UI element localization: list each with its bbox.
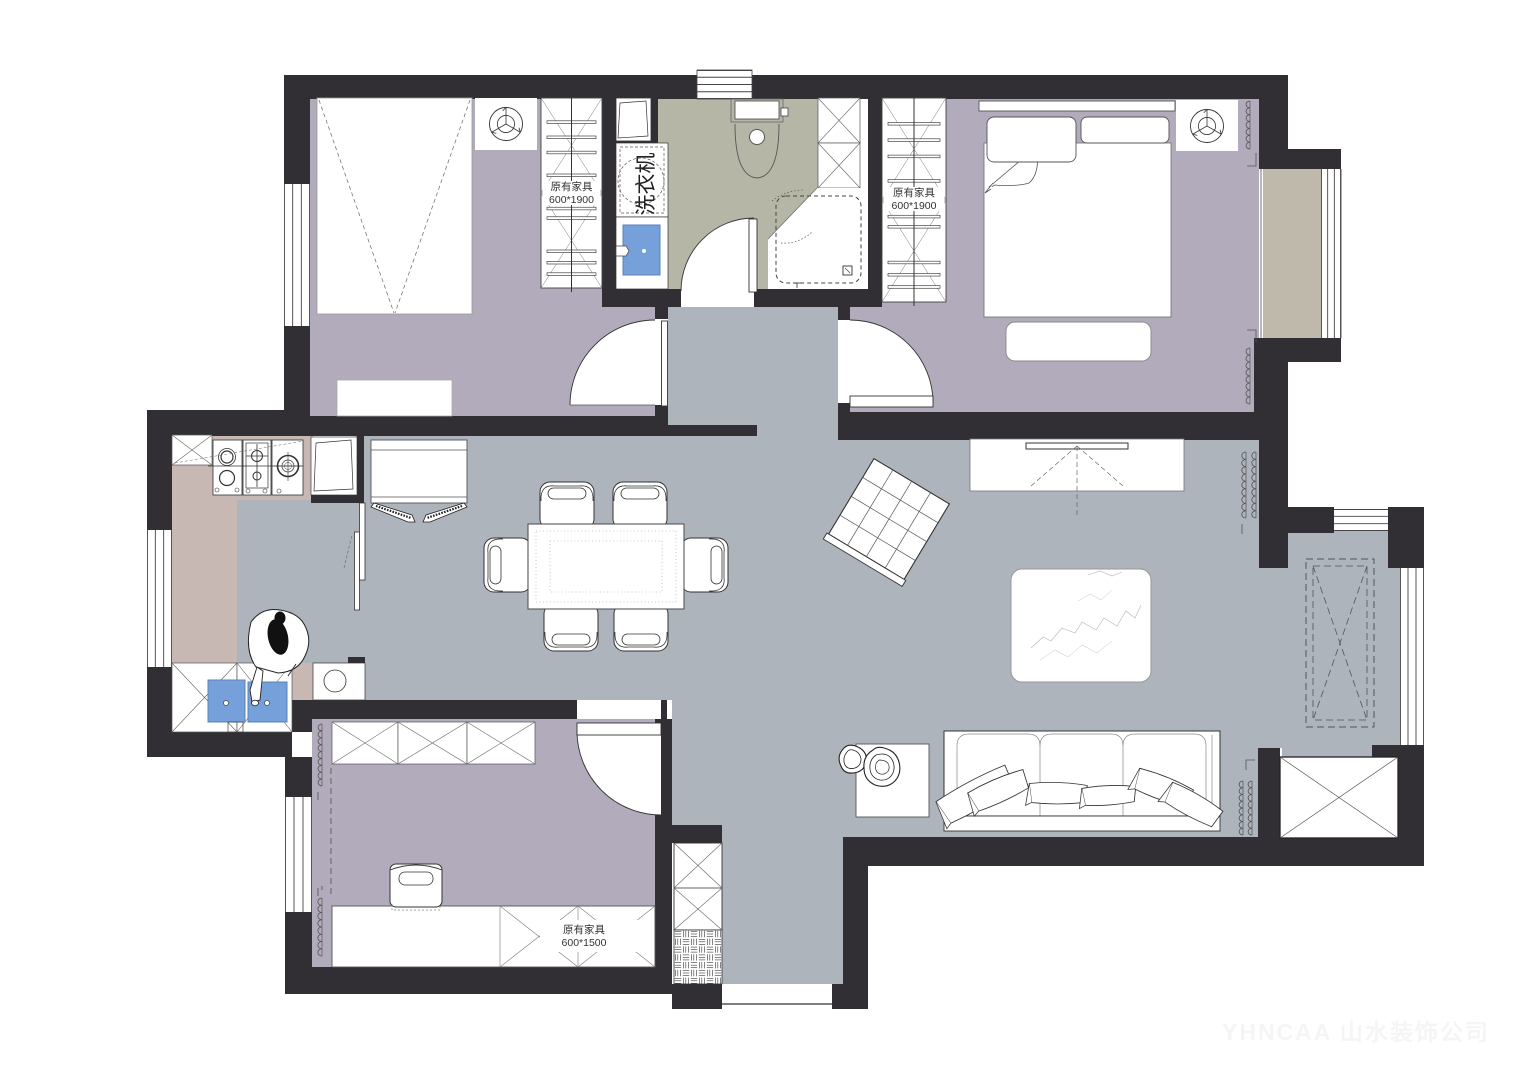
svg-text:原有家具: 原有家具: [893, 186, 935, 199]
svg-text:洗衣机: 洗衣机: [635, 153, 658, 216]
svg-text:原有家具: 原有家具: [551, 180, 593, 193]
svg-text:600*1900: 600*1900: [549, 194, 594, 206]
svg-text:600*1900: 600*1900: [892, 200, 937, 212]
svg-text:YHNCAA 山水装饰公司: YHNCAA 山水装饰公司: [1222, 1019, 1490, 1045]
svg-text:600*1500: 600*1500: [562, 937, 607, 949]
svg-text:原有家具: 原有家具: [563, 923, 605, 936]
